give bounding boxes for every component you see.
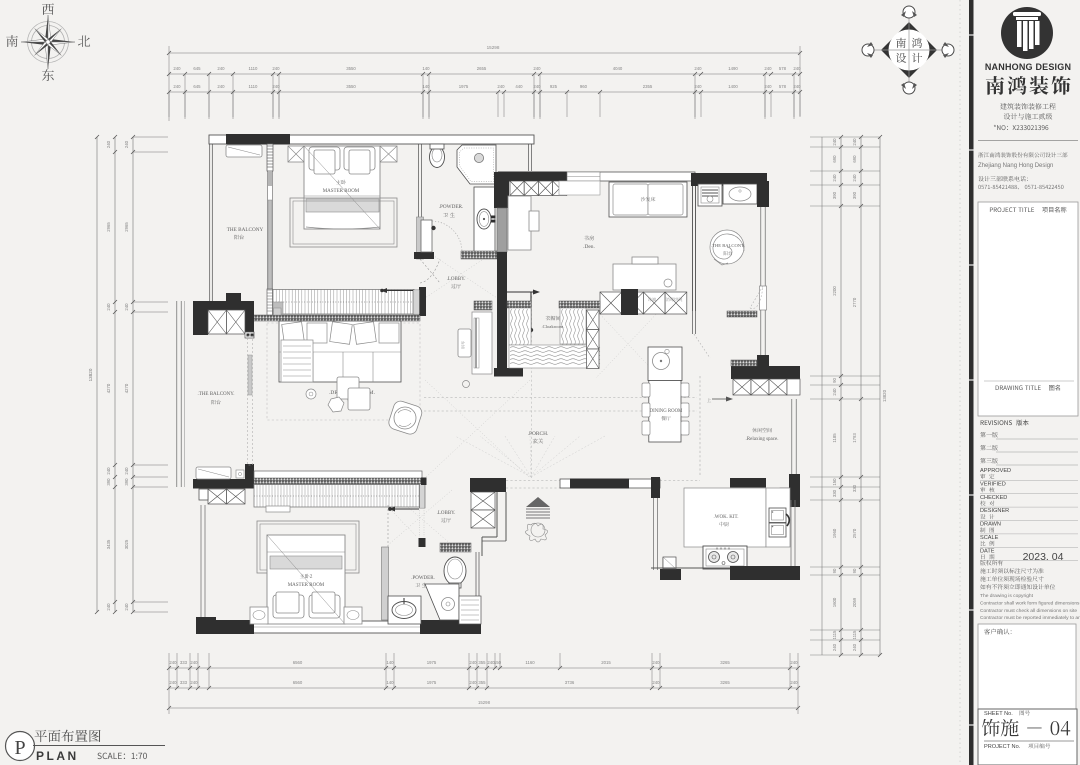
svg-text:960: 960 [580,84,588,89]
svg-text:355: 355 [478,680,486,685]
svg-text:1975: 1975 [459,84,469,89]
svg-text:MASTER ROOM: MASTER ROOM [323,189,360,194]
svg-text:240: 240 [652,660,660,665]
svg-text:1110: 1110 [249,66,259,71]
svg-text:240: 240 [190,660,198,665]
svg-text:.THE BALCONY.: .THE BALCONY. [711,243,745,248]
svg-text:.POWDER.: .POWDER. [439,204,464,210]
svg-text:240: 240 [533,84,541,89]
svg-text:90: 90 [832,378,837,383]
svg-text:Contractor shall work form fig: Contractor shall work form figured dimen… [980,600,1080,606]
svg-text:1160: 1160 [525,660,535,665]
svg-text:240: 240 [124,467,129,475]
svg-text:CHECKED: CHECKED [980,495,1007,501]
svg-text:2059: 2059 [852,597,857,607]
svg-text:240: 240 [217,84,225,89]
svg-text:240: 240 [124,303,129,311]
svg-text:240: 240 [694,84,702,89]
svg-text:2570: 2570 [852,528,857,538]
svg-text:.Relaxing space.: .Relaxing space. [746,437,779,442]
svg-text:240: 240 [272,66,280,71]
svg-text:.Cloakroom.: .Cloakroom. [542,324,565,329]
svg-text:240: 240 [694,66,702,71]
svg-text:Contractor must be reported im: Contractor must be reported immediately … [980,615,1080,621]
svg-text:578: 578 [779,66,787,71]
svg-text:6560: 6560 [293,680,303,685]
svg-text:DRAWN: DRAWN [980,522,1001,528]
svg-text:240: 240 [793,66,801,71]
svg-text:240: 240 [832,138,837,146]
svg-text:150: 150 [832,478,837,486]
svg-text:240: 240 [852,174,857,182]
svg-text:1975: 1975 [427,660,437,665]
svg-text:240: 240 [106,140,111,148]
svg-text:240: 240 [764,84,772,89]
svg-text:PROJECT No.: PROJECT No. [984,744,1021,750]
svg-text:240: 240 [106,603,111,611]
svg-text:1115: 1115 [852,630,857,640]
svg-text:1975: 1975 [427,680,437,685]
svg-text:3265: 3265 [720,660,730,665]
svg-text:240: 240 [852,643,857,651]
svg-text:140: 140 [386,680,394,685]
svg-text:SHEET No.: SHEET No. [984,711,1013,717]
svg-text:3550: 3550 [346,84,356,89]
svg-text:.LOBBY.: .LOBBY. [447,277,466,282]
svg-text:1400: 1400 [728,84,738,89]
svg-text:NANHONG DESIGN: NANHONG DESIGN [985,62,1071,72]
svg-text:2200: 2200 [832,286,837,296]
svg-text:240: 240 [652,680,660,685]
svg-text:240: 240 [832,643,837,651]
svg-text:.THE BALCONY.: .THE BALCONY. [198,392,235,397]
svg-text:PLAN: PLAN [36,749,79,763]
svg-text:240: 240 [169,660,177,665]
svg-text:578: 578 [779,84,787,89]
svg-text:645: 645 [193,84,201,89]
svg-text:240: 240 [790,660,798,665]
svg-text:4270: 4270 [124,383,129,393]
svg-text:690: 690 [852,155,857,163]
svg-text:925: 925 [550,84,558,89]
svg-text:3435: 3435 [106,539,111,549]
svg-text:15298: 15298 [478,700,491,705]
svg-text:240: 240 [533,66,541,71]
svg-text:240: 240 [124,603,129,611]
svg-text:330: 330 [852,484,857,492]
svg-text:1600: 1600 [832,597,837,607]
svg-text:355: 355 [478,660,486,665]
svg-text:2965: 2965 [124,222,129,232]
svg-text:330: 330 [832,489,837,497]
svg-text:240: 240 [217,66,225,71]
svg-text:P: P [14,737,25,759]
svg-text:13820: 13820 [882,389,887,402]
svg-text:VERIFIED: VERIFIED [980,481,1006,487]
svg-text:240: 240 [764,66,772,71]
svg-text:240: 240 [169,680,177,685]
svg-text:.PORCH.: .PORCH. [528,431,549,437]
svg-text:3736: 3736 [565,680,575,685]
svg-text:4270: 4270 [106,383,111,393]
svg-text:390: 390 [832,191,837,199]
svg-text:4040: 4040 [613,66,623,71]
svg-text:13820: 13820 [88,368,93,381]
svg-text:390: 390 [106,478,111,486]
svg-text:240: 240 [124,140,129,148]
svg-text:2015: 2015 [601,660,611,665]
svg-text:.WOK. KIT.: .WOK. KIT. [714,515,739,520]
svg-text:240: 240 [469,660,477,665]
svg-text:140: 140 [386,660,394,665]
svg-text:1115: 1115 [832,630,837,640]
svg-text:3550: 3550 [346,66,356,71]
svg-text:240: 240 [190,680,198,685]
svg-text:3265: 3265 [720,680,730,685]
svg-text:140: 140 [422,84,430,89]
svg-text:440: 440 [515,84,523,89]
svg-text:2355: 2355 [643,84,653,89]
svg-text:240: 240 [272,84,280,89]
svg-text:240: 240 [852,138,857,146]
svg-text:DINING ROOM: DINING ROOM [650,409,683,414]
svg-text:90: 90 [852,568,857,573]
svg-text:1490: 1490 [728,66,738,71]
svg-text:240: 240 [790,680,798,685]
svg-text:The drawing is copyright: The drawing is copyright [980,593,1034,599]
svg-text:1793: 1793 [852,433,857,443]
svg-text:Contractor must check all dime: Contractor must check all dimensions on … [980,608,1077,614]
svg-text:240: 240 [832,388,837,396]
svg-text:THE BALCONY: THE BALCONY [227,227,264,233]
svg-text:DESIGNER: DESIGNER [980,508,1009,514]
svg-text:240: 240 [469,680,477,685]
svg-text:240: 240 [173,66,181,71]
svg-text:3025: 3025 [124,539,129,549]
svg-text:1110: 1110 [249,84,259,89]
svg-text:SCALE: SCALE [980,535,999,541]
svg-text:240: 240 [832,174,837,182]
svg-text:140: 140 [422,66,430,71]
svg-text:240: 240 [106,303,111,311]
svg-text:.LOBBY.: .LOBBY. [437,511,456,516]
svg-text:333: 333 [180,680,188,685]
svg-text:240: 240 [793,84,801,89]
svg-text:APPROVED: APPROVED [980,468,1011,474]
svg-text:MASTER ROOM: MASTER ROOM [288,583,325,588]
svg-text:240: 240 [173,84,181,89]
svg-text:390: 390 [124,478,129,486]
svg-text:645: 645 [193,66,201,71]
svg-text:6560: 6560 [293,660,303,665]
svg-text:333: 333 [180,660,188,665]
svg-text:2770: 2770 [852,297,857,307]
svg-text:Zhejiang Nang Hong Design: Zhejiang Nang Hong Design [978,163,1053,169]
svg-text:15298: 15298 [487,45,500,50]
svg-text:1960: 1960 [832,528,837,538]
svg-text:2965: 2965 [106,222,111,232]
svg-text:240: 240 [106,467,111,475]
svg-text:2655: 2655 [477,66,487,71]
svg-text:1185: 1185 [832,433,837,443]
svg-text:390: 390 [852,191,857,199]
svg-text:690: 690 [832,155,837,163]
svg-text:DATE: DATE [980,548,995,554]
svg-text:240: 240 [497,84,505,89]
svg-text:.POWDER.: .POWDER. [411,576,435,581]
svg-text:90: 90 [832,568,837,573]
svg-text:.Den.: .Den. [583,244,595,250]
svg-text:2023. 04: 2023. 04 [1023,551,1064,563]
